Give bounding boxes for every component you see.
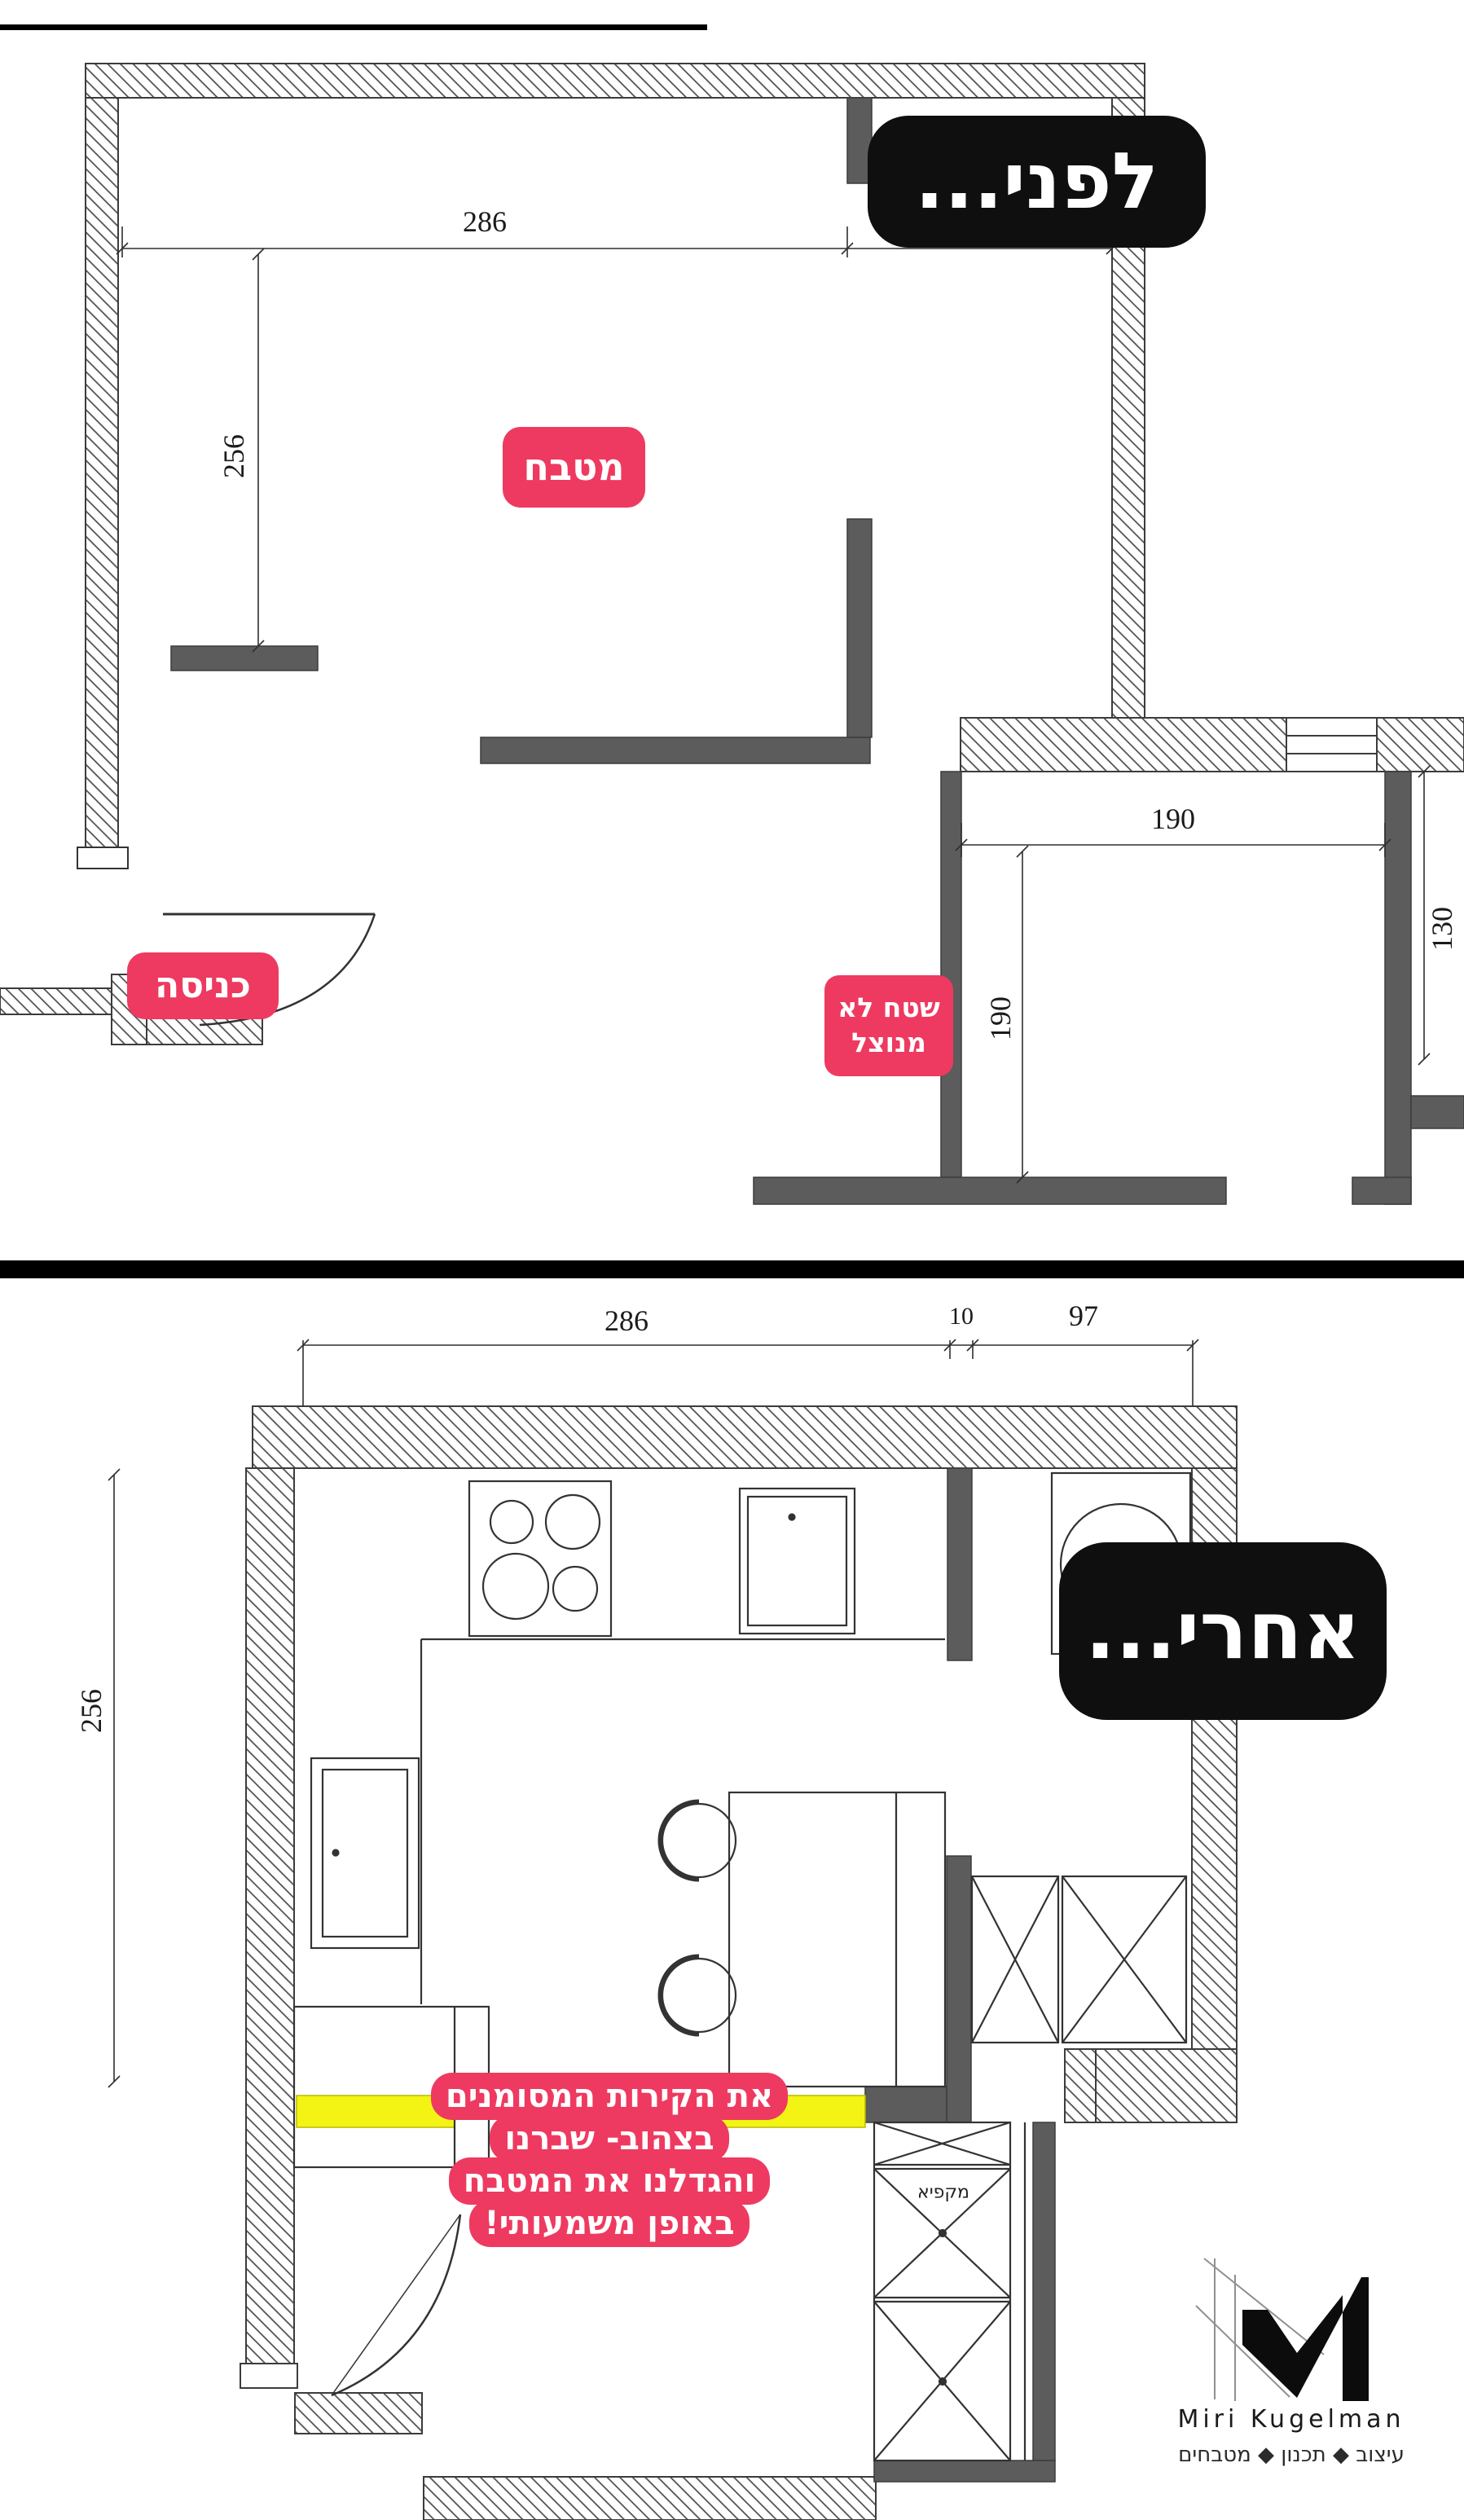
chair-icon [660, 1801, 736, 1880]
pantry-cabinet-icon [972, 1876, 1186, 2043]
unused-space-badge: שטח לא מנוצל [824, 975, 953, 1076]
logo-tagline: עיצוב ◆ תכנון ◆ מטבחים [1165, 2443, 1418, 2467]
before-window-icon [1286, 718, 1377, 772]
note-line-2: בצהוב- שברנו [490, 2115, 728, 2162]
note-line-3: והגדלנו את המטבח [449, 2157, 770, 2205]
freezer-cabinet-label: מקפיא [917, 2183, 969, 2203]
renovation-note: את הקירות המסומנים בצהוב- שברנו והגדלנו … [446, 2078, 772, 2247]
before-dim-room-height: 190 [983, 996, 1018, 1040]
after-stage-badge: אחרי... [1059, 1542, 1387, 1720]
after-stage-label: אחרי... [1085, 1591, 1361, 1671]
fridge-icon [311, 1758, 419, 1948]
sink-icon [740, 1489, 855, 1634]
before-walls-gray [171, 98, 1464, 1204]
cooktop-icon [469, 1481, 611, 1636]
before-dim-left-height: 256 [217, 434, 251, 478]
after-door-jamb [240, 2364, 297, 2388]
after-dim-top-right: 97 [1069, 1299, 1098, 1333]
before-dim-room-width: 190 [1151, 802, 1195, 836]
before-dim-top-width: 286 [463, 205, 507, 239]
entrance-label: כניסה [155, 962, 251, 1009]
before-dimension-lines [117, 226, 1430, 1183]
section-divider [0, 1260, 1464, 1278]
logo-m-icon [1196, 2258, 1369, 2401]
after-dim-top-gap: 10 [949, 1303, 974, 1330]
unused-space-label-line1: שטח לא [838, 991, 940, 1026]
floorplan-poster: לפני... מטבח כניסה שטח לא מנוצל 286 97 2… [0, 0, 1464, 2520]
after-walls-gray [865, 1468, 1055, 2482]
after-dim-top-width: 286 [605, 1304, 648, 1338]
unused-space-label-line2: מנוצל [851, 1026, 926, 1061]
after-dim-left-height: 256 [74, 1689, 108, 1733]
note-line-4: באופן משמעותי! [469, 2200, 749, 2247]
before-stage-badge: לפני... [868, 116, 1206, 248]
after-plan [108, 1339, 1237, 2520]
before-dim-room-side: 130 [1425, 907, 1459, 951]
kitchen-room-badge: מטבח [503, 427, 645, 508]
after-fixtures [294, 1473, 1190, 2461]
chair-icon [660, 1956, 736, 2034]
kitchen-room-label: מטבח [523, 443, 624, 492]
island-counter [729, 1792, 945, 2087]
tall-cabinet-column-icon [874, 2122, 1025, 2461]
entrance-badge: כניסה [127, 952, 279, 1019]
before-stage-label: לפני... [915, 143, 1158, 221]
logo-name: Miri Kugelman [1165, 2405, 1418, 2434]
note-line-1: את הקירות המסומנים [431, 2073, 788, 2120]
after-door-swing-icon [332, 2214, 460, 2395]
before-walls-hatched [0, 64, 1464, 1045]
before-plan [0, 64, 1464, 1204]
top-rule [0, 24, 707, 30]
